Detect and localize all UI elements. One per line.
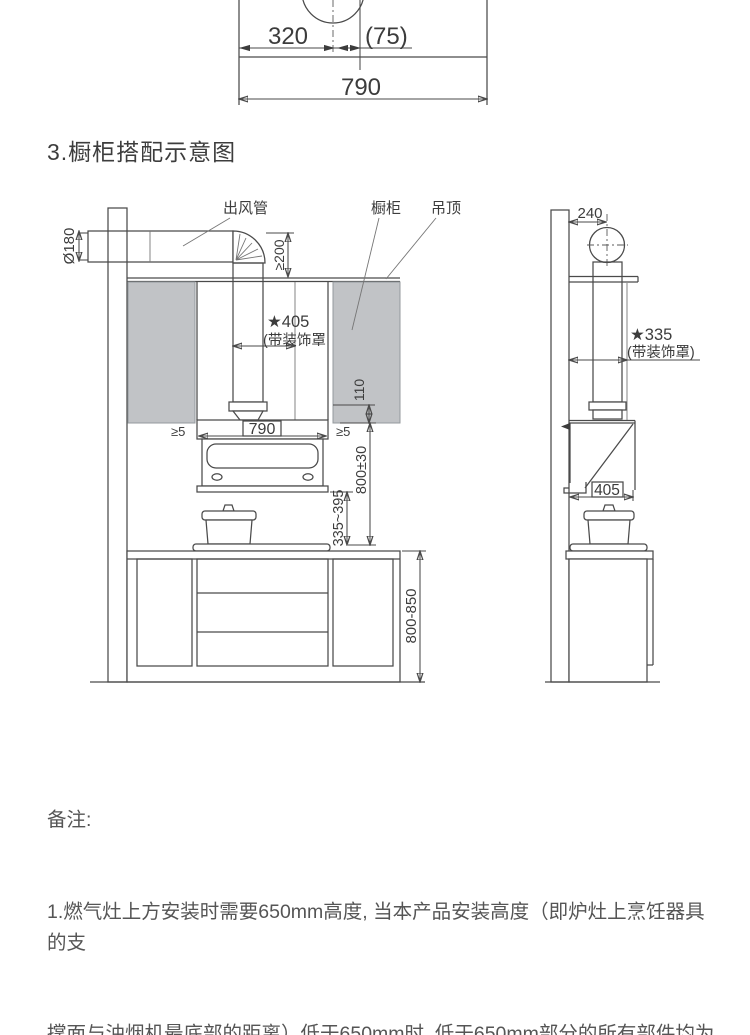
dim-hood-depth-405: 405	[570, 482, 633, 501]
dim-75-label: (75)	[365, 23, 408, 50]
duct-collar-right	[589, 402, 626, 410]
base-cabinet-left-diagram	[127, 551, 400, 682]
dim-wall-to-center-240: 240	[569, 205, 606, 222]
exhaust-duct-horizontal	[88, 231, 233, 262]
svg-text:335~395: 335~395	[331, 490, 347, 547]
duct-elbow	[233, 231, 265, 263]
installation-diagrams: 320 (75) 790	[0, 0, 750, 710]
svg-text:≥5: ≥5	[336, 424, 350, 439]
svg-text:Ø180: Ø180	[61, 228, 78, 265]
dim-790-label: 790	[341, 74, 381, 101]
notes-title: 备注:	[47, 805, 723, 836]
svg-text:★335: ★335	[630, 326, 672, 344]
svg-text:790: 790	[249, 421, 276, 438]
svg-text:吊顶: 吊顶	[431, 200, 461, 217]
hood-top-view-figure: 320 (75) 790	[239, 0, 487, 105]
notes-section: 备注: 1.燃气灶上方安装时需要650mm高度, 当本产品安装高度（即炉灶上烹饪…	[47, 744, 723, 1035]
dim-counter-height: 800-850	[402, 551, 426, 682]
counter-right-diagram	[566, 551, 653, 682]
dim-duct-diameter: Ø180	[61, 228, 88, 265]
dim-hood-bottom-range: 335~395	[330, 490, 353, 547]
svg-text:出风管: 出风管	[223, 200, 268, 217]
upper-cabinet-left	[128, 282, 195, 423]
cooktop-left	[193, 544, 330, 551]
dim-cover-width-335: ★335 (带装饰罩)	[569, 326, 700, 361]
cooktop-right	[570, 544, 647, 551]
dim-gap-left: ≥5	[171, 424, 185, 439]
wall-mount-arrow	[561, 423, 570, 430]
svg-text:(带装饰罩): (带装饰罩)	[627, 344, 695, 361]
note-line: 撑面与油烟机最底部的距离）低于650mm时, 低于650mm部分的所有部件均为油	[47, 1019, 723, 1035]
exhaust-duct-right	[593, 262, 622, 402]
label-duct: 出风管	[183, 200, 268, 246]
svg-text:橱柜: 橱柜	[371, 200, 401, 217]
cooking-pot-right	[584, 505, 634, 544]
exhaust-duct-vertical	[233, 263, 263, 402]
hood-panel	[207, 444, 318, 468]
cabinet-layout-left-diagram: 出风管 橱柜 吊顶 Ø180 ≥200 ★405 (带装饰罩	[61, 200, 461, 682]
dimension-320-75: 320 (75)	[239, 23, 412, 51]
svg-text:405: 405	[594, 482, 620, 499]
brick-wall-left	[108, 208, 127, 682]
svg-text:≥200: ≥200	[271, 239, 287, 270]
note-line: 1.燃气灶上方安装时需要650mm高度, 当本产品安装高度（即炉灶上烹饪器具的支	[47, 897, 723, 958]
svg-text:800±30: 800±30	[354, 446, 370, 494]
svg-text:(带装饰罩: (带装饰罩	[263, 332, 326, 349]
manual-page: 320 (75) 790	[0, 0, 750, 1035]
cooking-pot-left	[202, 505, 256, 544]
svg-text:240: 240	[577, 205, 602, 222]
svg-text:≥5: ≥5	[171, 424, 185, 439]
duct-collar	[229, 402, 267, 411]
dim-clearance-200: ≥200	[266, 233, 294, 277]
brick-wall-right	[551, 210, 569, 682]
svg-text:★405: ★405	[267, 313, 309, 331]
dimension-790-top: 790	[239, 74, 487, 101]
dim-install-height-800: 800±30	[348, 423, 376, 545]
svg-text:800-850: 800-850	[403, 588, 420, 643]
dim-320-label: 320	[268, 23, 308, 50]
cabinet-layout-right-diagram: 240 ★335 (带装饰罩)	[545, 205, 700, 682]
section-heading: 3.橱柜搭配示意图	[47, 133, 236, 167]
svg-text:110: 110	[351, 379, 367, 402]
dim-cover-width-405: ★405 (带装饰罩	[233, 313, 326, 349]
dim-gap-right: ≥5	[336, 424, 350, 439]
